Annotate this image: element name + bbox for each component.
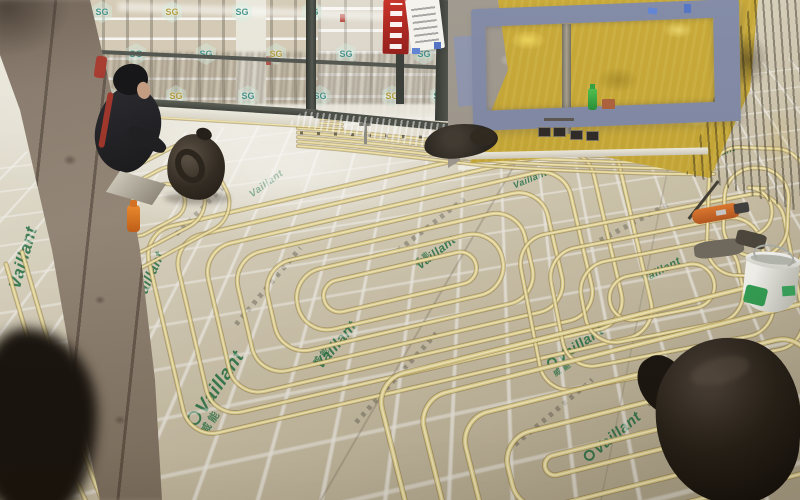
blue-tape [648,7,658,14]
sign-text-lines [411,3,439,44]
blue-tape [434,42,441,49]
bucket-green-label [743,284,769,307]
window-mullion [306,0,316,118]
blue-tape [684,4,691,13]
heating-pipe [320,249,479,315]
orange-bottle [127,205,140,232]
green-bottle [588,88,597,110]
bottle-cap [590,84,595,89]
electrical-outlet [570,130,583,140]
banner-text-marks [390,3,403,49]
heating-pipe [291,228,510,336]
electrical-outlet [538,127,551,137]
tv-wall-niche-frame [471,0,741,131]
electrical-outlet [586,131,599,141]
wall-wiring [544,118,574,121]
blue-tape [412,48,420,54]
room-photo: Vaillant Vaillant Vaillant威能 Vaillant威能 … [0,0,800,500]
jacket-pile [470,128,496,146]
heating-pipe [291,228,510,336]
orange-bottle-cap [130,200,137,207]
heating-pipe [291,228,510,336]
bucket-green-label [782,285,796,296]
wall-group [448,0,800,212]
heating-pipe [320,249,479,315]
small-box [602,99,615,109]
electrical-outlet [553,127,566,137]
heating-pipe [320,249,479,315]
white-bucket [741,249,800,314]
